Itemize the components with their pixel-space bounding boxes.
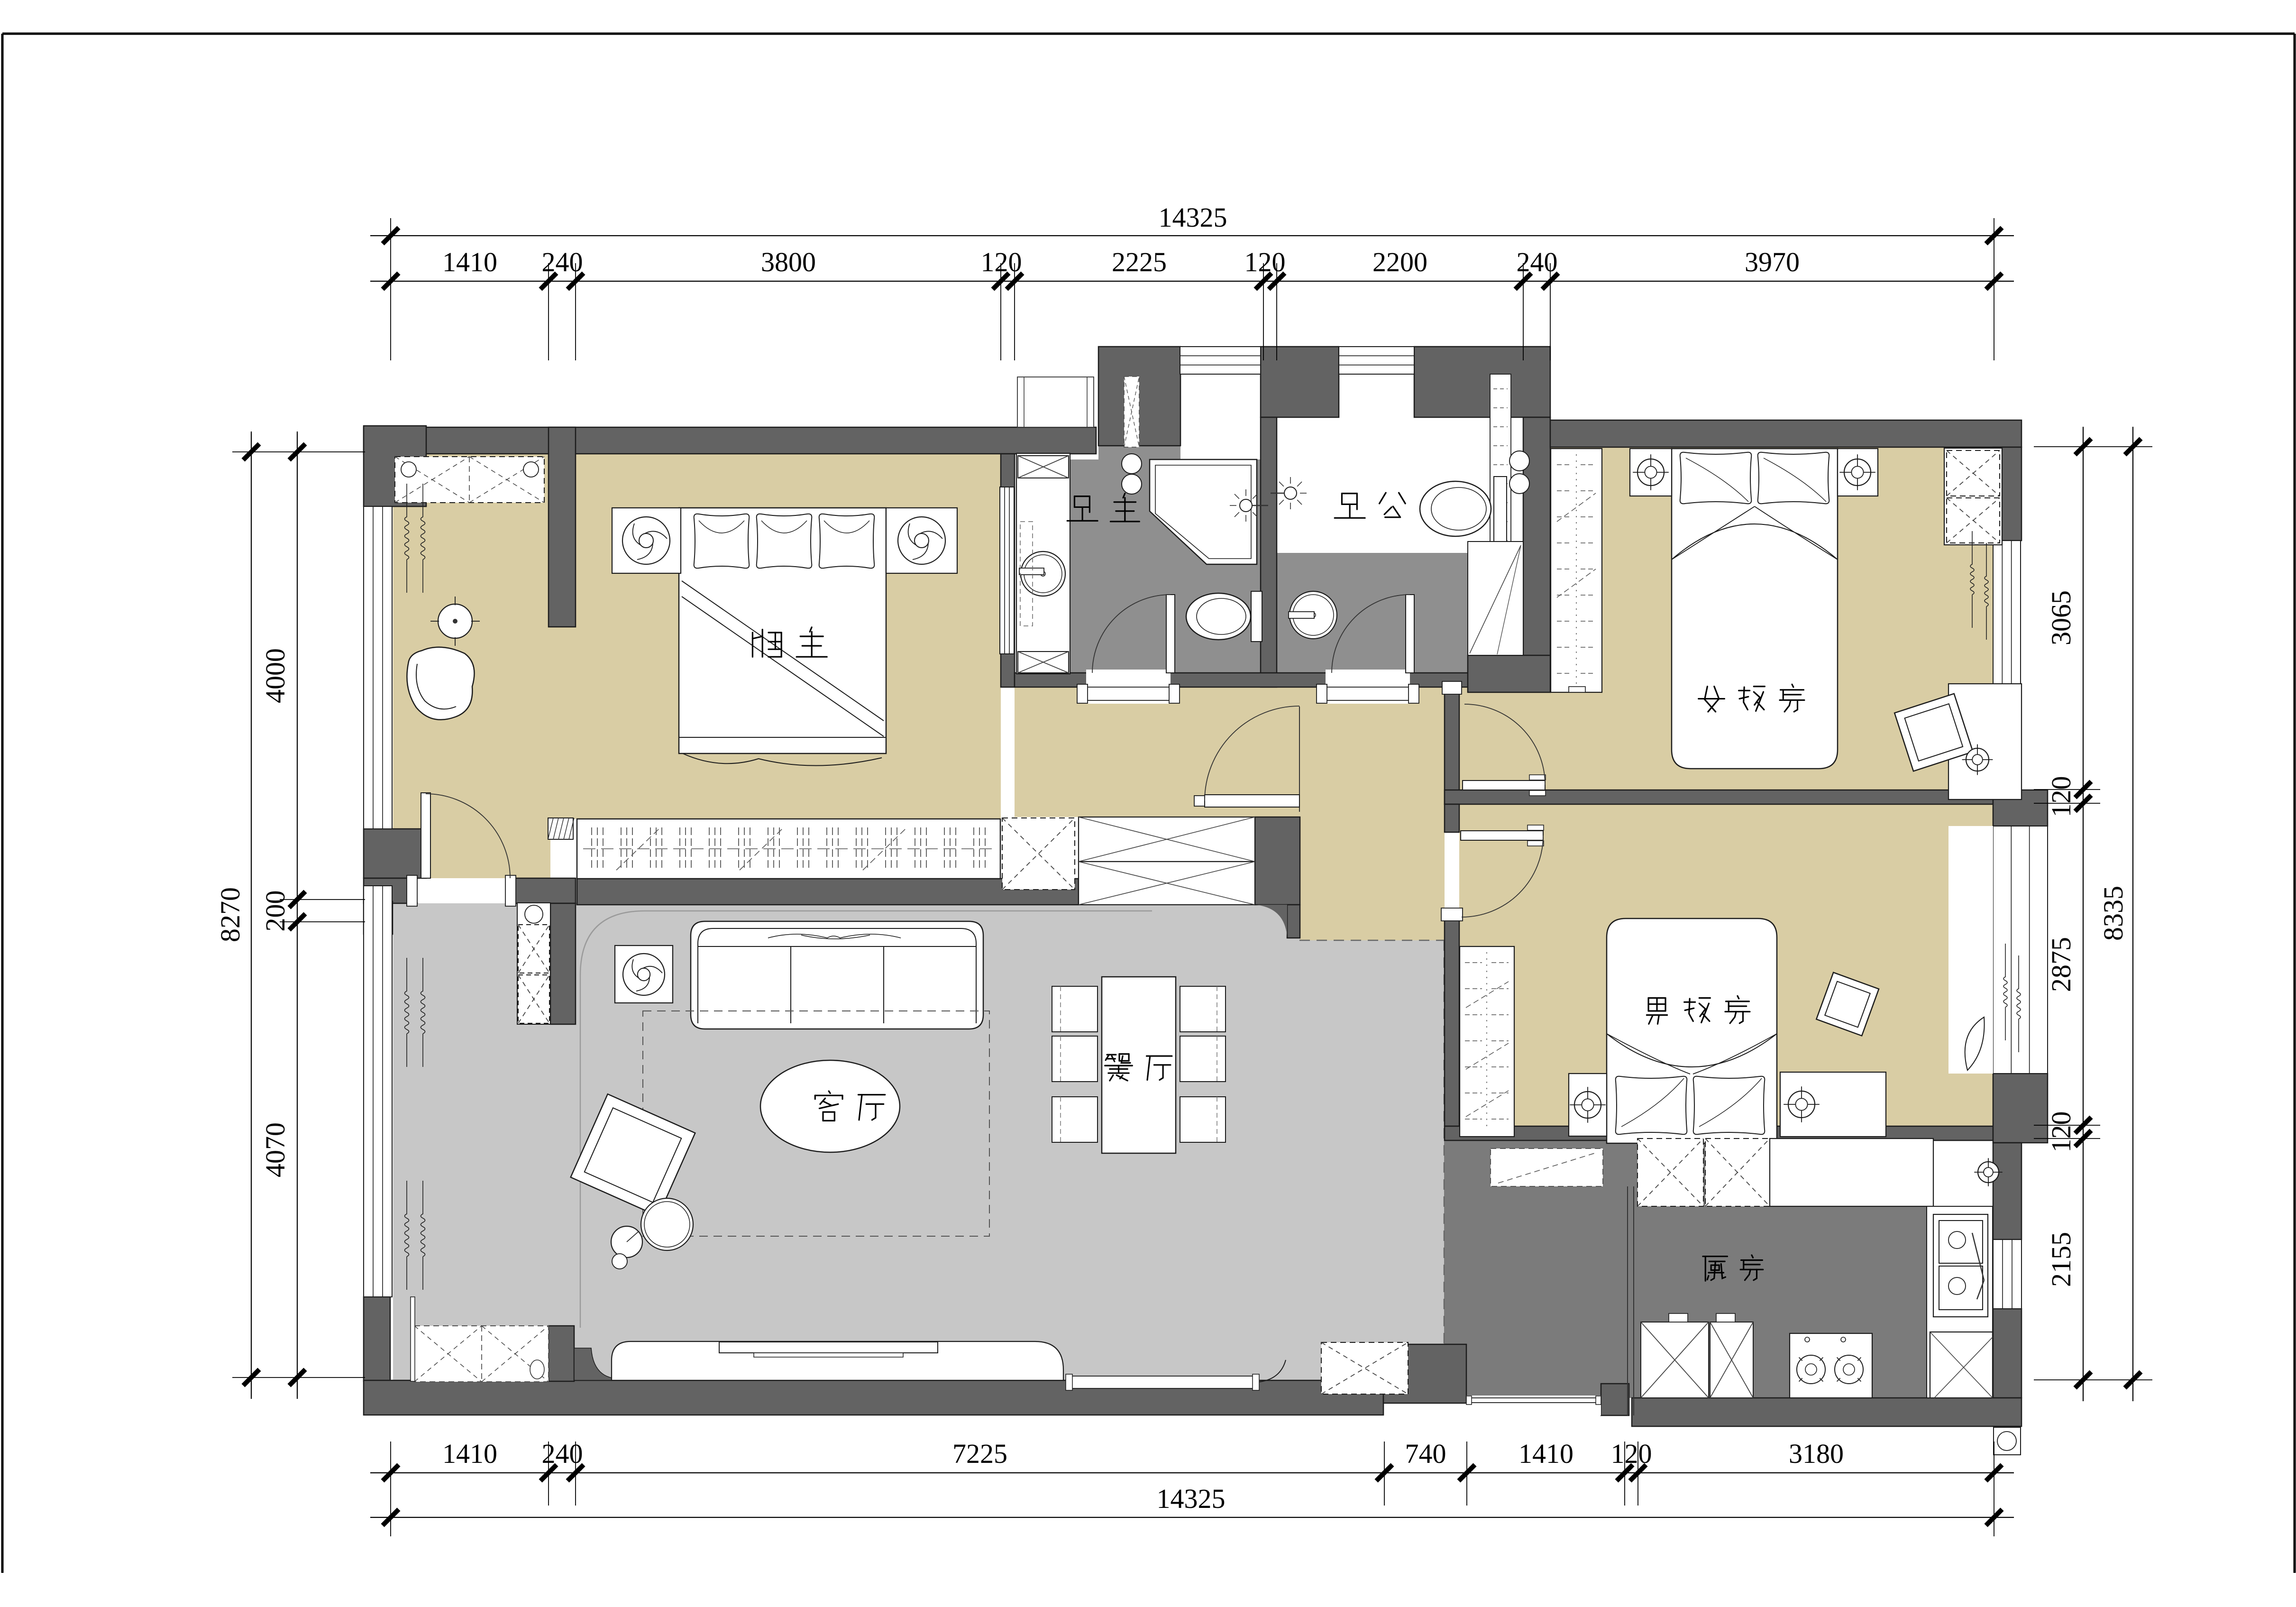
- svg-text:740: 740: [1405, 1438, 1446, 1469]
- svg-text:120: 120: [1611, 1438, 1652, 1469]
- svg-text:120: 120: [2046, 776, 2076, 817]
- svg-text:3800: 3800: [761, 247, 816, 277]
- svg-text:3180: 3180: [1789, 1438, 1844, 1469]
- svg-text:1410: 1410: [442, 1438, 497, 1469]
- svg-text:2875: 2875: [2046, 937, 2076, 992]
- svg-text:4070: 4070: [260, 1122, 291, 1177]
- svg-text:200: 200: [260, 891, 291, 932]
- svg-text:8270: 8270: [215, 887, 246, 942]
- svg-text:2155: 2155: [2046, 1232, 2076, 1287]
- svg-text:3970: 3970: [1745, 247, 1800, 277]
- svg-text:1410: 1410: [442, 247, 497, 277]
- svg-text:2200: 2200: [1372, 247, 1427, 277]
- svg-text:120: 120: [981, 247, 1022, 277]
- svg-text:7225: 7225: [952, 1438, 1007, 1469]
- svg-text:4000: 4000: [260, 648, 291, 703]
- svg-text:120: 120: [2046, 1111, 2076, 1153]
- svg-text:8335: 8335: [2098, 886, 2129, 941]
- svg-text:240: 240: [542, 1438, 583, 1469]
- svg-text:14325: 14325: [1159, 202, 1227, 233]
- svg-text:120: 120: [1244, 247, 1286, 277]
- svg-text:14325: 14325: [1157, 1483, 1226, 1514]
- svg-text:240: 240: [1517, 247, 1558, 277]
- svg-text:3065: 3065: [2046, 590, 2076, 645]
- svg-text:240: 240: [542, 247, 583, 277]
- svg-text:1410: 1410: [1518, 1438, 1573, 1469]
- svg-text:2225: 2225: [1112, 247, 1167, 277]
